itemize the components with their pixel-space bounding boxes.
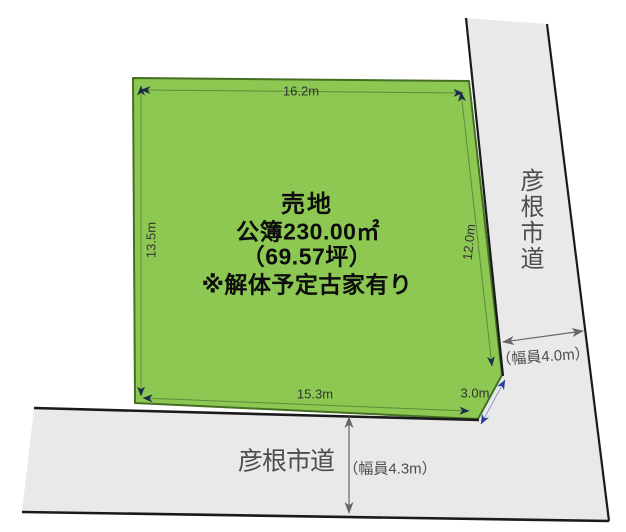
road-name-right: 彦根市道: [517, 168, 541, 272]
road-name-bottom: 彦根市道: [238, 450, 334, 475]
dim-label-top: 16.2m: [283, 85, 319, 98]
plot-tsubo-area: （69.57坪）: [242, 246, 373, 269]
plot-title: 売地: [281, 193, 333, 217]
plot-registered-area: 公簿230.00㎡: [236, 221, 380, 244]
dim-label-right: 12.0m: [461, 223, 478, 260]
road-width-bottom: （幅員4.3m）: [343, 462, 436, 477]
land-plot-diagram: 16.2m 13.5m 12.0m 15.3m 3.0m 売地 公簿230.00…: [0, 0, 626, 532]
dim-label-bottom: 15.3m: [297, 388, 333, 401]
dim-label-corner-cut: 3.0m: [461, 387, 490, 400]
dim-label-left: 13.5m: [145, 222, 158, 258]
plot-note: ※解体予定古家有り: [202, 274, 413, 297]
